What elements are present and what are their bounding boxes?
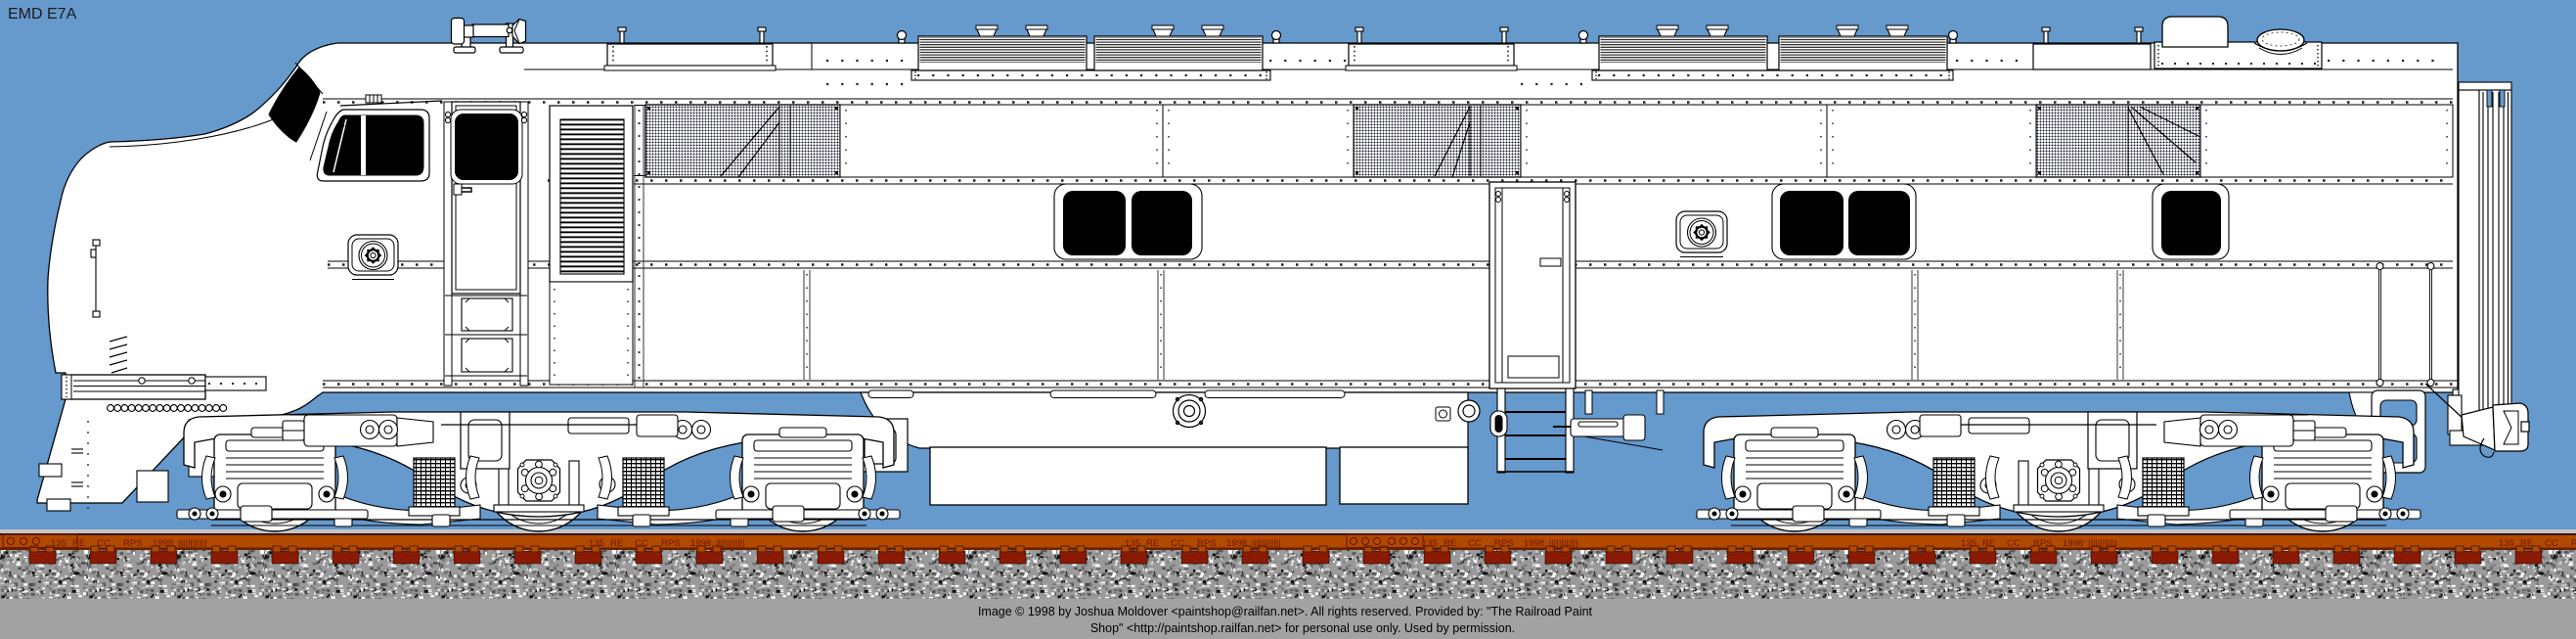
svg-text:135: 135 (2499, 538, 2514, 549)
svg-text:CC: CC (1171, 538, 1184, 549)
svg-text:1998: 1998 (153, 538, 173, 549)
svg-text:CC: CC (97, 538, 111, 549)
svg-text:135: 135 (1422, 538, 1438, 549)
svg-text:CC: CC (2007, 538, 2021, 549)
svg-text:CC: CC (2545, 538, 2558, 549)
svg-text:RE: RE (2520, 538, 2533, 549)
svg-text:135: 135 (1125, 538, 1140, 549)
svg-text:1998: 1998 (1226, 538, 1247, 549)
svg-text:||||||||||||: |||||||||||| (1549, 538, 1578, 549)
svg-text:1998: 1998 (1524, 538, 1544, 549)
svg-text:CC: CC (1468, 538, 1482, 549)
svg-text:135: 135 (589, 538, 604, 549)
svg-text:RPS: RPS (1494, 538, 1514, 549)
svg-text:Shop" <http://paintshop.railfa: Shop" <http://paintshop.railfan.net> for… (1090, 621, 1515, 635)
svg-text:RPS: RPS (1197, 538, 1217, 549)
svg-text:||||||||||||: |||||||||||| (178, 538, 207, 549)
svg-text:RPS: RPS (123, 538, 143, 549)
svg-text:Image © 1998 by Joshua Moldov: Image © 1998 by Joshua Moldover <paintsh… (978, 605, 1593, 618)
svg-text:CC: CC (635, 538, 648, 549)
svg-text:1998: 1998 (690, 538, 711, 549)
svg-text:||||||||||||: |||||||||||| (1252, 538, 1281, 549)
svg-text:||||||||||||: |||||||||||| (716, 538, 745, 549)
svg-text:RE: RE (1982, 538, 1995, 549)
svg-text:1998: 1998 (2063, 538, 2083, 549)
svg-text:135: 135 (1961, 538, 1976, 549)
svg-text:EMD E7A: EMD E7A (8, 6, 77, 23)
svg-text:RE: RE (610, 538, 623, 549)
svg-text:RE: RE (1146, 538, 1159, 549)
svg-text:RPS: RPS (2033, 538, 2053, 549)
svg-text:RPS: RPS (2571, 538, 2576, 549)
svg-text:||||||||||||: |||||||||||| (2088, 538, 2117, 549)
svg-text:RPS: RPS (661, 538, 681, 549)
svg-text:RE: RE (1443, 538, 1456, 549)
